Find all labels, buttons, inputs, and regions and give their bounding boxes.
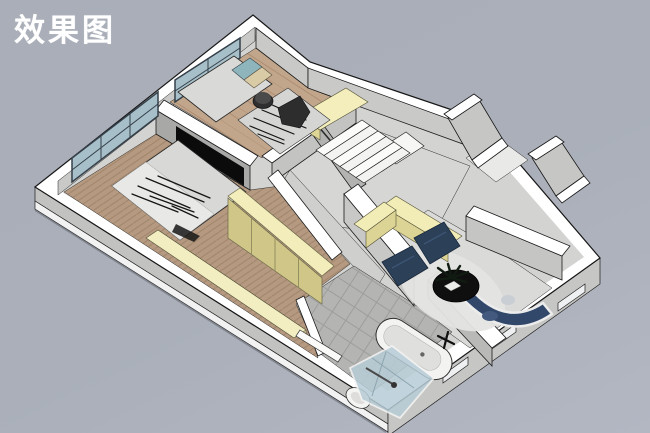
render-canvas: 效果图 <box>0 0 650 433</box>
shower-drain <box>391 382 397 388</box>
floorplan-3d-render <box>0 0 650 433</box>
watermark-title: 效果图 <box>14 14 116 48</box>
sofa-cushion <box>501 295 515 305</box>
